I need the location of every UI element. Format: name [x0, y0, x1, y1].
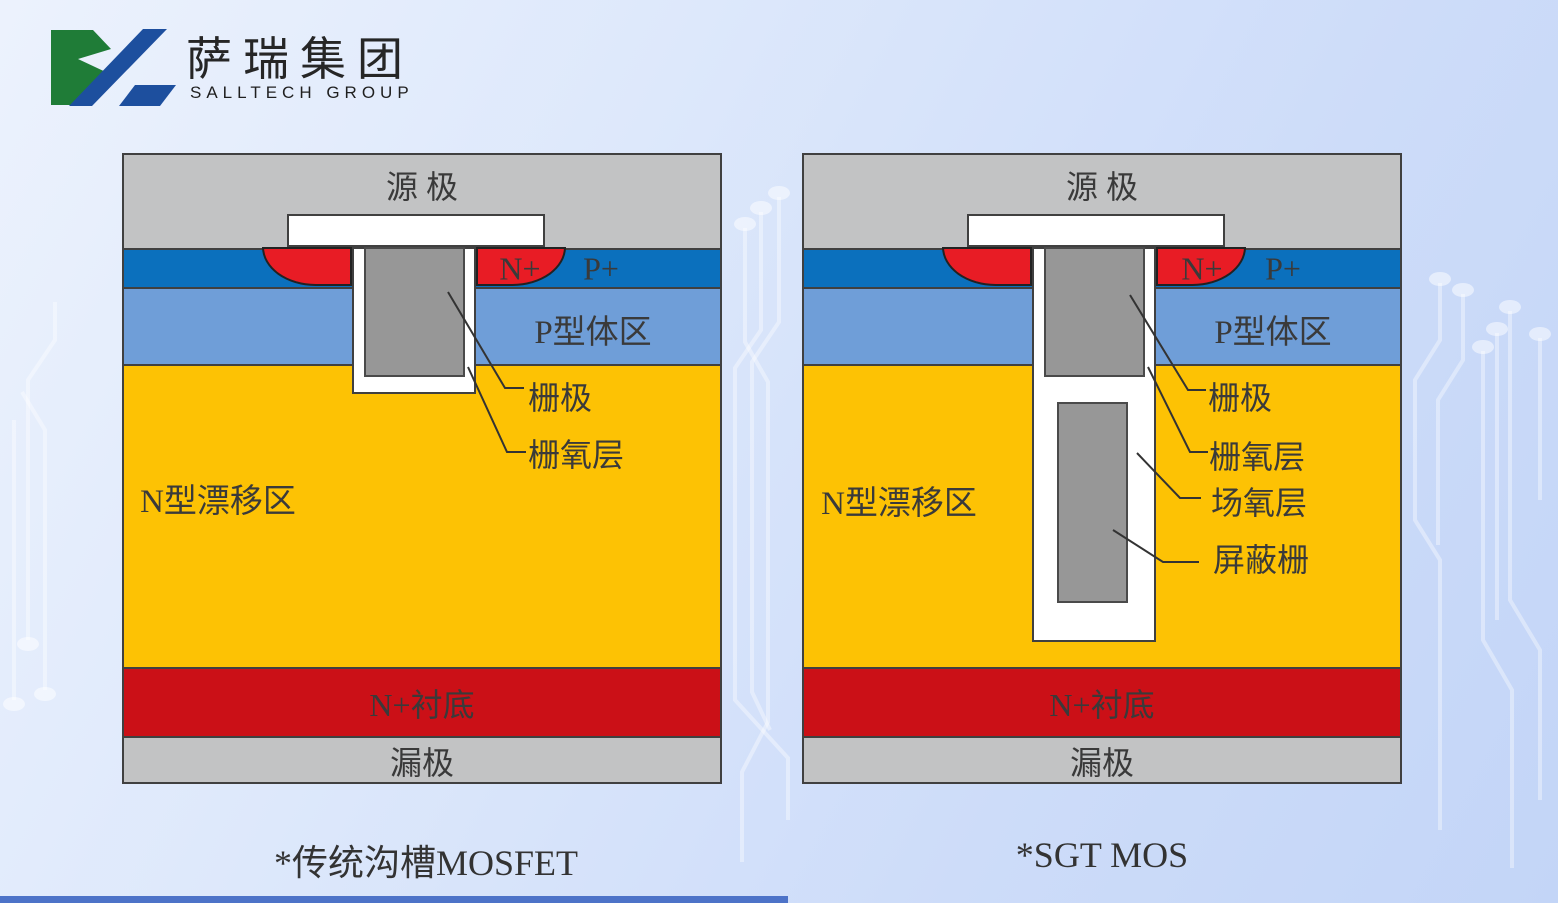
bottom-accent-bar: [0, 896, 788, 903]
label-shield-gate: 屏蔽栅: [1213, 535, 1309, 581]
label-n-plus: N+: [1181, 251, 1222, 288]
label-gate: 栅极: [1208, 373, 1272, 419]
diagram-sgt-mos: 源 极 N+ P+ P型体区 N型漂移区 栅极 栅氧层 场氧层 屏蔽栅 N+衬底…: [802, 153, 1402, 784]
label-substrate: N+衬底: [369, 680, 474, 726]
label-p-body: P型体区: [534, 305, 651, 353]
source-contact: [287, 214, 545, 247]
label-gate-oxide: 栅氧层: [1209, 432, 1305, 478]
label-source: 源 极: [1066, 162, 1138, 208]
brand-name-en: SALLTECH GROUP: [190, 83, 414, 103]
circuit-traces-right: [1415, 272, 1551, 868]
gate-electrode: [1044, 247, 1145, 377]
label-drain: 漏极: [390, 738, 454, 784]
label-field-oxide: 场氧层: [1211, 478, 1307, 524]
caption-trench-mosfet: *传统沟槽MOSFET: [274, 834, 578, 886]
caption-sgt-mos: *SGT MOS: [1016, 834, 1188, 876]
circuit-traces-middle: [734, 186, 790, 862]
source-contact: [967, 214, 1225, 247]
label-p-body: P型体区: [1214, 305, 1331, 353]
label-substrate: N+衬底: [1049, 680, 1154, 726]
diagram-trench-mosfet: 源 极 N+ P+ P型体区 N型漂移区 栅极 栅氧层 N+衬底 漏极: [122, 153, 722, 784]
label-source: 源 极: [386, 162, 458, 208]
slide-page: 萨瑞集团 SALLTECH GROUP 源 极 N+ P+ P型体区 N型漂移区…: [0, 0, 1558, 903]
salltech-logo-icon: [48, 25, 178, 110]
brand-name-cn: 萨瑞集团: [186, 23, 414, 89]
label-p-plus: P+: [1265, 251, 1301, 288]
label-n-drift: N型漂移区: [140, 474, 296, 522]
label-gate: 栅极: [528, 373, 592, 419]
label-gate-oxide: 栅氧层: [528, 430, 624, 476]
logo-blue-parallelogram: [119, 85, 176, 106]
label-n-drift: N型漂移区: [821, 476, 977, 524]
gate-electrode: [364, 247, 465, 377]
label-drain: 漏极: [1070, 738, 1134, 784]
label-n-plus: N+: [499, 251, 540, 288]
circuit-traces-left: [3, 302, 56, 711]
shield-gate-electrode: [1057, 402, 1128, 603]
label-p-plus: P+: [583, 251, 619, 288]
